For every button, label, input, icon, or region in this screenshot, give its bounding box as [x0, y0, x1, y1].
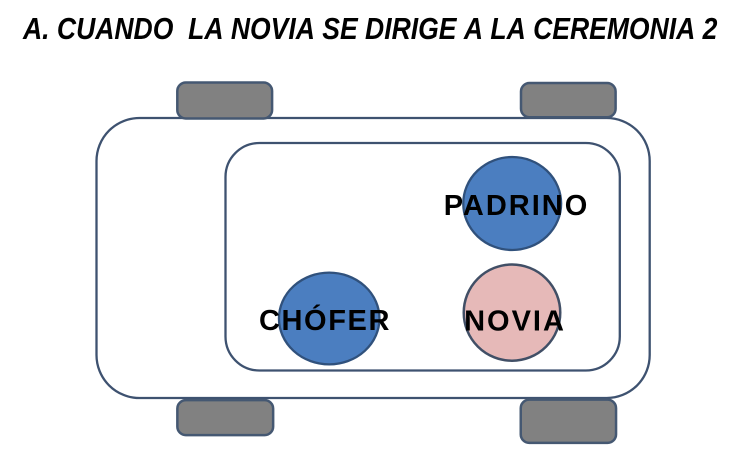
svg-text:NOVIA: NOVIA: [464, 306, 566, 338]
svg-text:CHÓFER: CHÓFER: [259, 303, 391, 337]
svg-text:PADRINO: PADRINO: [444, 190, 590, 222]
